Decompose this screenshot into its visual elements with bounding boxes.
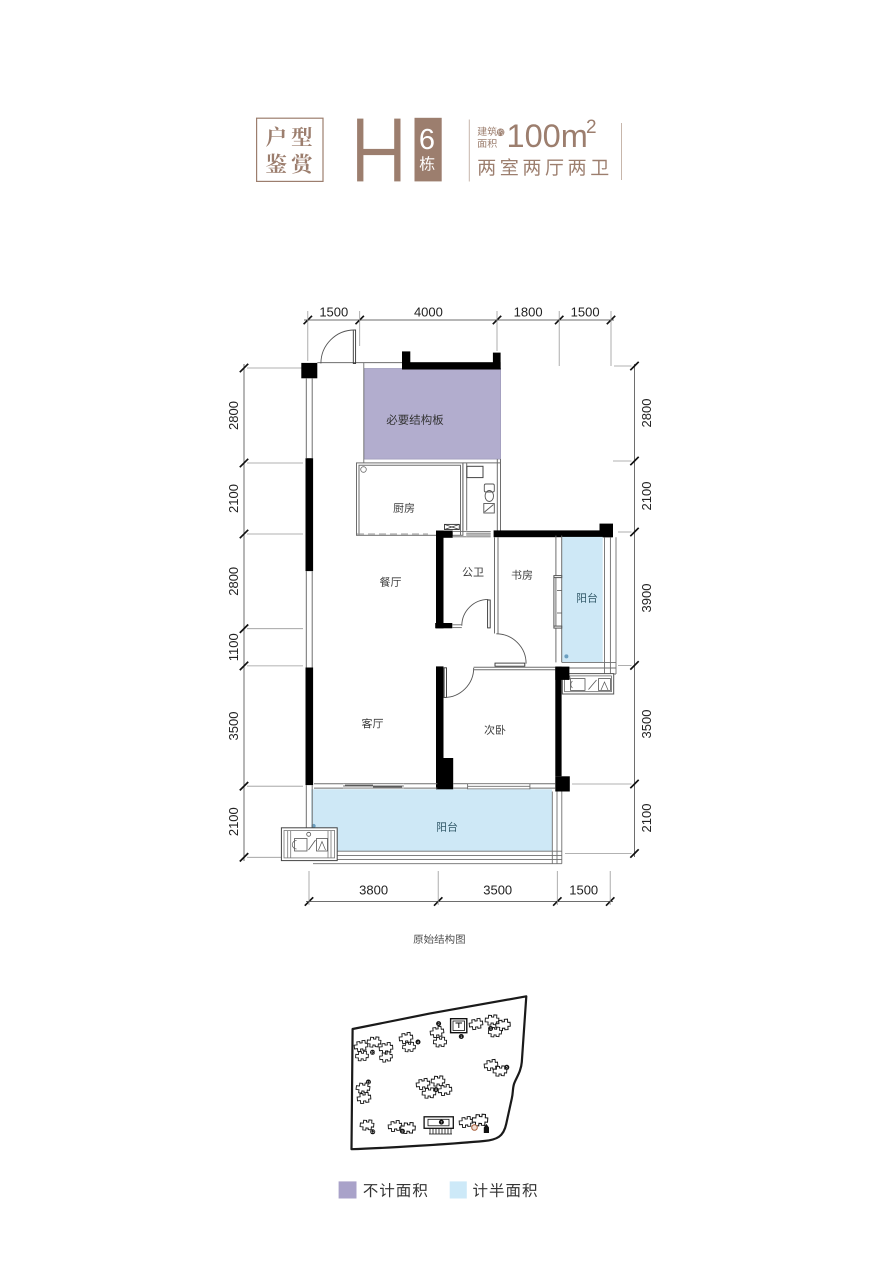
svg-text:9: 9 [401, 1130, 403, 1134]
svg-text:3500: 3500 [226, 712, 241, 741]
svg-text:2800: 2800 [226, 401, 241, 430]
svg-text:11: 11 [367, 1080, 371, 1084]
svg-text:2: 2 [438, 1022, 440, 1026]
svg-text:3900: 3900 [639, 584, 654, 613]
svg-text:2100: 2100 [639, 482, 654, 511]
svg-text:1100: 1100 [226, 633, 241, 661]
svg-text:2: 2 [586, 117, 597, 138]
svg-text:3500: 3500 [639, 710, 654, 739]
svg-text:1500: 1500 [569, 883, 598, 898]
svg-text:1800: 1800 [514, 305, 543, 320]
svg-text:3500: 3500 [483, 883, 512, 898]
svg-text:2100: 2100 [226, 807, 241, 836]
svg-text:2800: 2800 [639, 399, 654, 428]
svg-text:8: 8 [435, 1088, 437, 1092]
svg-text:4000: 4000 [414, 305, 443, 320]
svg-text:1500: 1500 [319, 305, 348, 320]
svg-text:3800: 3800 [359, 883, 388, 898]
svg-text:6: 6 [419, 124, 435, 156]
svg-text:10: 10 [371, 1051, 375, 1055]
svg-text:2100: 2100 [226, 484, 241, 513]
svg-text:12: 12 [371, 1130, 375, 1134]
svg-text:5: 5 [506, 1066, 508, 1070]
svg-text:1500: 1500 [571, 305, 600, 320]
svg-text:7: 7 [440, 1120, 442, 1124]
svg-text:1: 1 [460, 1035, 462, 1039]
svg-text:4: 4 [417, 1040, 419, 1044]
svg-text:100m: 100m [507, 118, 588, 154]
svg-text:2100: 2100 [639, 804, 654, 833]
svg-text:2800: 2800 [226, 567, 241, 596]
svg-text:3: 3 [490, 1027, 492, 1031]
